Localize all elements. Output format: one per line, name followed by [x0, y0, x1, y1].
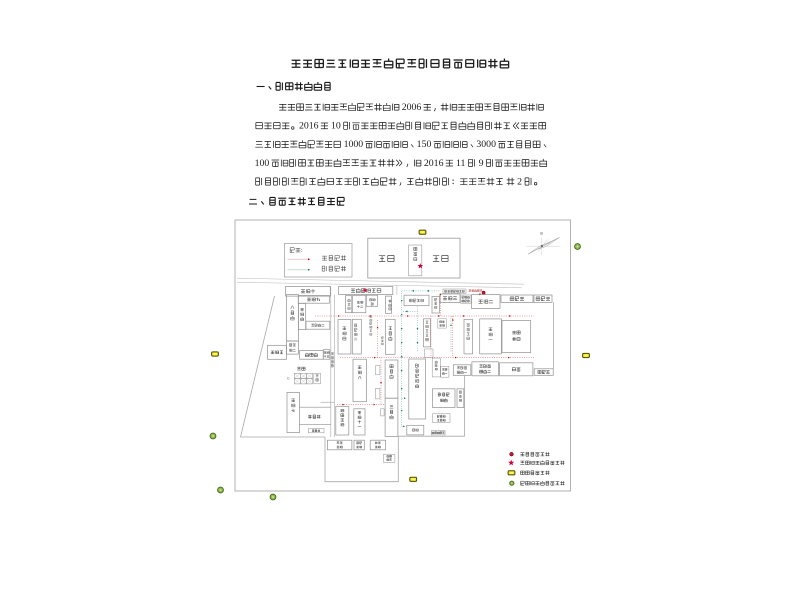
- svg-text:11: 11: [456, 158, 466, 169]
- svg-text:2016: 2016: [299, 121, 319, 132]
- svg-text:3000: 3000: [476, 139, 496, 150]
- svg-text:2016: 2016: [424, 158, 444, 169]
- svg-text:100: 100: [255, 158, 270, 169]
- svg-text:150: 150: [417, 139, 432, 150]
- svg-text:2006: 2006: [402, 102, 422, 113]
- svg-text:2: 2: [517, 176, 522, 187]
- svg-text::: :: [301, 247, 303, 254]
- svg-text:1000: 1000: [344, 139, 364, 150]
- svg-text:9: 9: [479, 158, 484, 169]
- svg-text:10: 10: [331, 121, 341, 132]
